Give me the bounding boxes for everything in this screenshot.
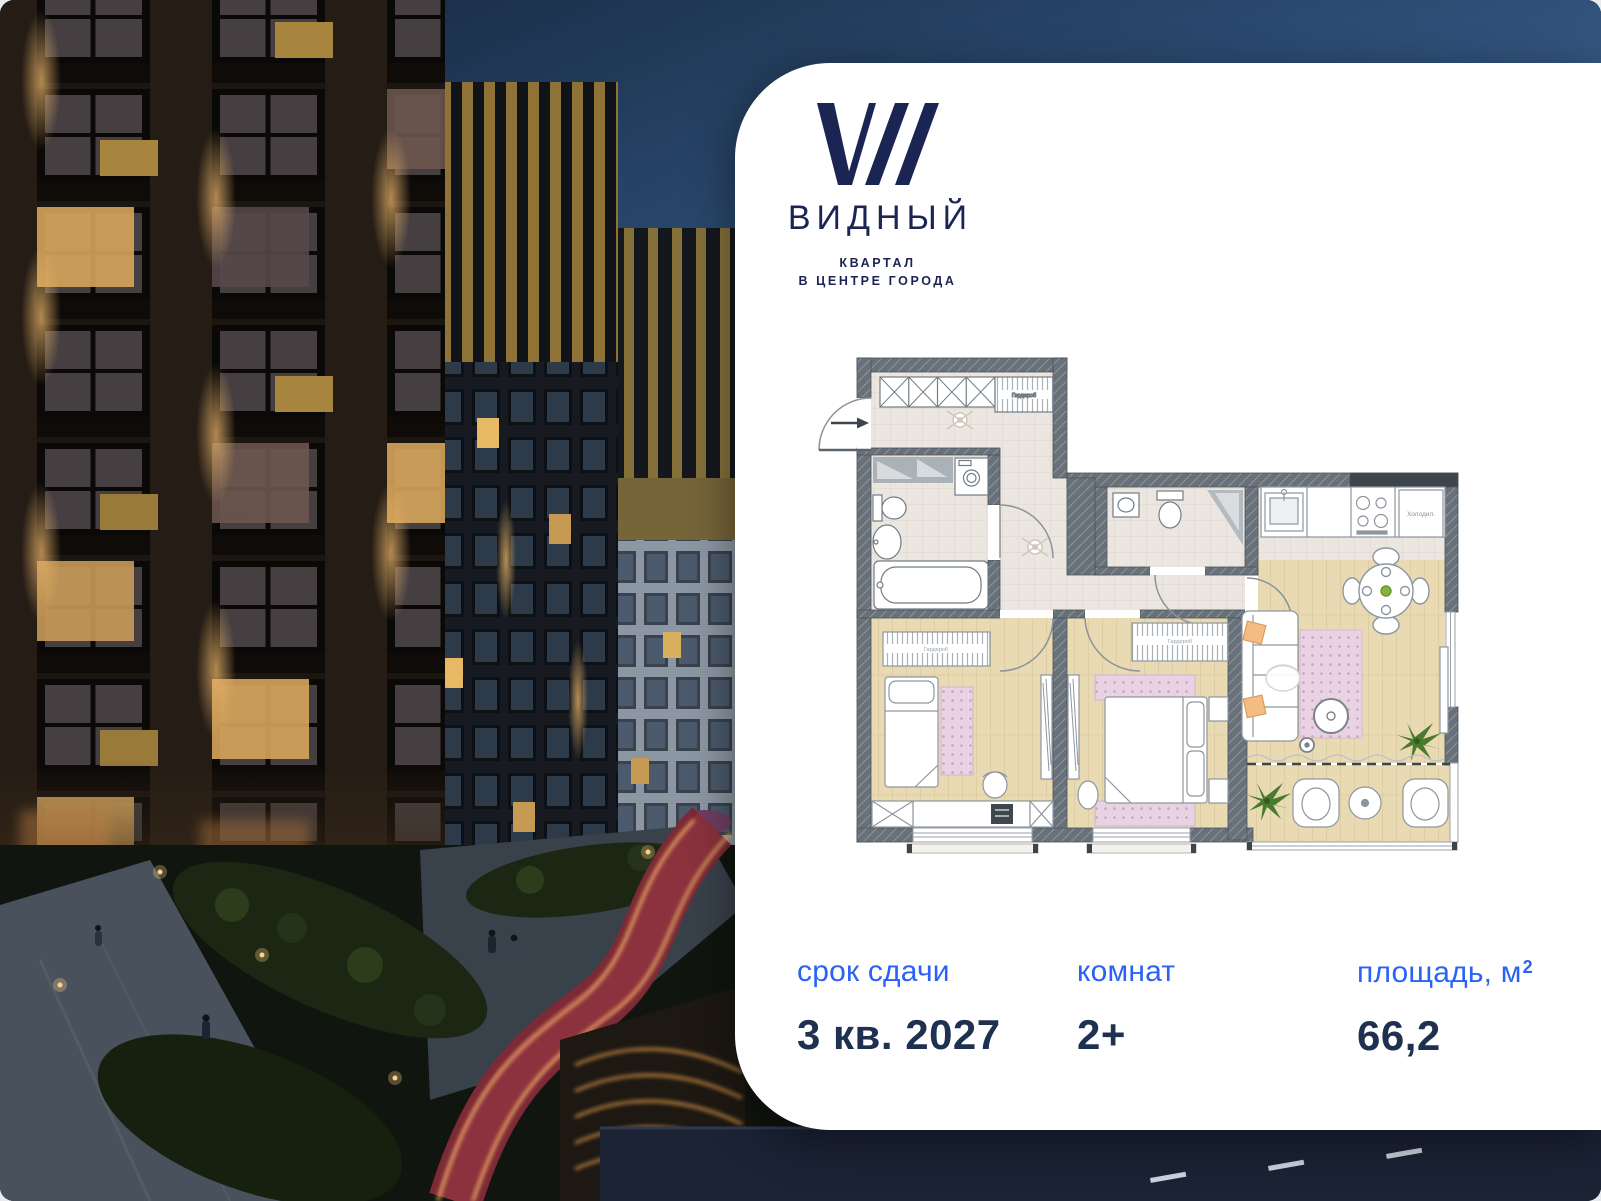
guest-toilet-icon: [1157, 491, 1183, 528]
brand-name: ВИДНЫЙ: [775, 199, 980, 238]
bedroom2-wardrobe-label: Гардероб: [1168, 639, 1192, 645]
nightstand-icon: [1209, 779, 1228, 803]
stat-rooms: комнат 2+: [1077, 955, 1175, 1059]
balcony-table-icon: [1349, 787, 1381, 819]
fridge-icon: Холодил.: [1399, 490, 1443, 537]
road: [600, 1128, 1601, 1201]
stat-rooms-value: 2+: [1077, 1011, 1175, 1059]
sketch-armchair: [1266, 665, 1300, 691]
floor-plan: Гардероб: [795, 345, 1475, 865]
hall-closet-label: Гардероб: [1012, 393, 1036, 399]
stat-area-label: площадь, м2: [1357, 955, 1532, 990]
desk-chair-icon: [983, 772, 1007, 798]
hall-wardrobe: Гардероб: [880, 377, 1053, 412]
balcony-armchair-icon: [1293, 779, 1339, 827]
kitchen: Холодил.: [1261, 487, 1445, 537]
balcony-armchair-icon: [1403, 779, 1448, 827]
guest-sink-icon: [1113, 493, 1139, 517]
bedroom1-wardrobe-label: Гардероб: [924, 647, 948, 653]
nightstand-icon: [1209, 697, 1228, 721]
tower-foreground: [0, 0, 445, 905]
stat-area: площадь, м2 66,2: [1357, 955, 1532, 1060]
stat-deadline-label: срок сдачи: [797, 955, 1001, 989]
brand-tagline-line1: КВАРТАЛ: [839, 256, 915, 270]
brand-logo: ВИДНЫЙ КВАРТАЛ В ЦЕНТРЕ ГОРОДА: [775, 103, 980, 290]
bathtub-icon: [874, 561, 988, 609]
brand-logo-mark-icon: [817, 103, 939, 185]
fridge-label: Холодил.: [1407, 511, 1435, 518]
sink-icon: [873, 525, 901, 559]
bedroom2-rug-top: [1095, 675, 1195, 700]
stat-area-value: 66,2: [1357, 1012, 1532, 1060]
coffee-table-icon: [1314, 699, 1348, 733]
entry-door: [819, 398, 871, 450]
stat-deadline-value: 3 кв. 2027: [797, 1011, 1001, 1059]
single-bed-icon: [885, 677, 938, 787]
floor-lamp-icon: [1300, 738, 1314, 752]
listing-card-canvas: ВИДНЫЙ КВАРТАЛ В ЦЕНТРЕ ГОРОДА: [0, 0, 1601, 1201]
tv-icon: [1440, 647, 1448, 733]
bedroom2-rug-bottom: [1095, 801, 1195, 826]
brand-tagline: КВАРТАЛ В ЦЕНТРЕ ГОРОДА: [775, 254, 980, 290]
brand-tagline-line2: В ЦЕНТРЕ ГОРОДА: [798, 274, 956, 288]
bedroom1-rug: [941, 687, 973, 775]
stat-rooms-label: комнат: [1077, 955, 1175, 989]
toilet-icon: [873, 495, 906, 521]
stat-deadline: срок сдачи 3 кв. 2027: [797, 955, 1001, 1059]
apartment-info-card[interactable]: ВИДНЫЙ КВАРТАЛ В ЦЕНТРЕ ГОРОДА: [735, 63, 1601, 1130]
double-bed-icon: [1105, 697, 1207, 803]
kitchen-sink-icon: [1265, 490, 1303, 532]
pouf-icon: [1078, 781, 1098, 809]
